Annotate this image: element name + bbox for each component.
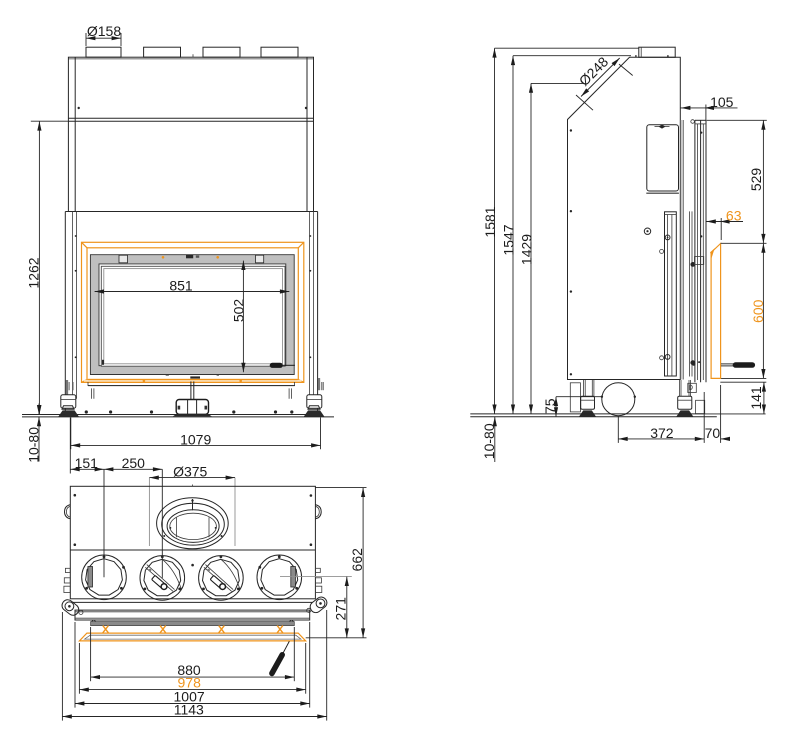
svg-text:70: 70 [705,425,721,441]
svg-text:529: 529 [748,168,764,192]
svg-text:1429: 1429 [519,234,535,265]
svg-text:10-80: 10-80 [481,423,497,459]
svg-text:Ø158: Ø158 [87,23,121,39]
svg-text:75: 75 [542,398,558,414]
svg-text:1079: 1079 [180,431,211,447]
svg-text:1262: 1262 [26,257,42,288]
svg-text:1547: 1547 [501,224,517,255]
svg-text:502: 502 [231,299,247,323]
svg-text:250: 250 [122,455,146,471]
svg-text:600: 600 [750,299,766,323]
svg-text:662: 662 [349,548,365,572]
svg-text:105: 105 [710,94,734,110]
svg-text:372: 372 [650,425,674,441]
svg-text:1581: 1581 [482,206,498,237]
svg-text:141: 141 [748,386,764,410]
svg-text:851: 851 [169,277,193,293]
svg-text:271: 271 [333,597,349,621]
svg-text:151: 151 [75,455,99,471]
svg-text:1143: 1143 [174,702,204,718]
svg-text:10-80: 10-80 [26,427,42,463]
svg-text:63: 63 [726,207,742,223]
svg-text:Ø375: Ø375 [173,464,207,480]
